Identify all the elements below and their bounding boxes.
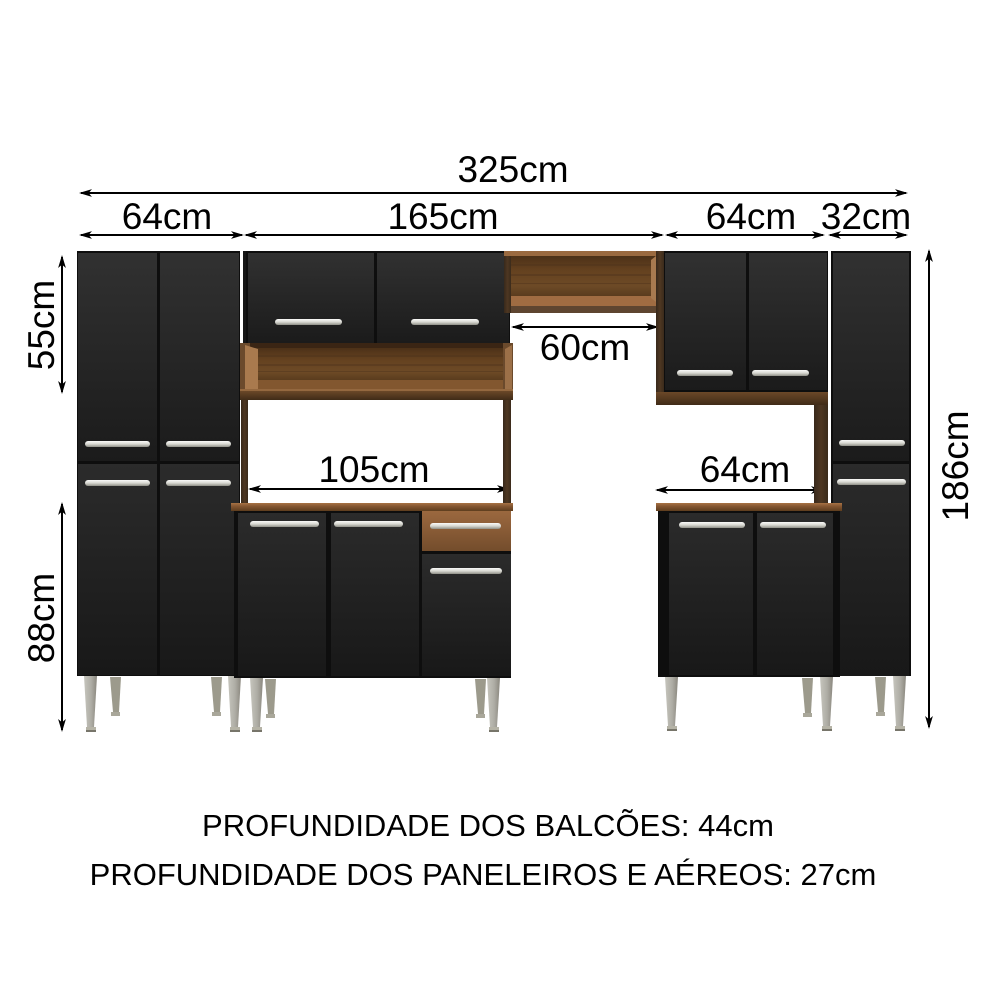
svg-text:88cm: 88cm: [21, 573, 62, 663]
svg-text:165cm: 165cm: [387, 196, 498, 237]
svg-text:64cm: 64cm: [706, 196, 796, 237]
svg-text:64cm: 64cm: [700, 449, 790, 490]
svg-text:55cm: 55cm: [21, 280, 62, 370]
svg-text:60cm: 60cm: [540, 327, 630, 368]
svg-text:186cm: 186cm: [935, 410, 976, 521]
svg-text:PROFUNDIDADE DOS PANELEIROS E: PROFUNDIDADE DOS PANELEIROS E AÉREOS: 27…: [90, 857, 877, 892]
svg-text:64cm: 64cm: [122, 196, 212, 237]
svg-text:105cm: 105cm: [318, 449, 429, 490]
svg-text:PROFUNDIDADE DOS BALCÕES: 44cm: PROFUNDIDADE DOS BALCÕES: 44cm: [202, 808, 774, 843]
svg-text:325cm: 325cm: [457, 149, 568, 190]
svg-text:32cm: 32cm: [821, 196, 911, 237]
